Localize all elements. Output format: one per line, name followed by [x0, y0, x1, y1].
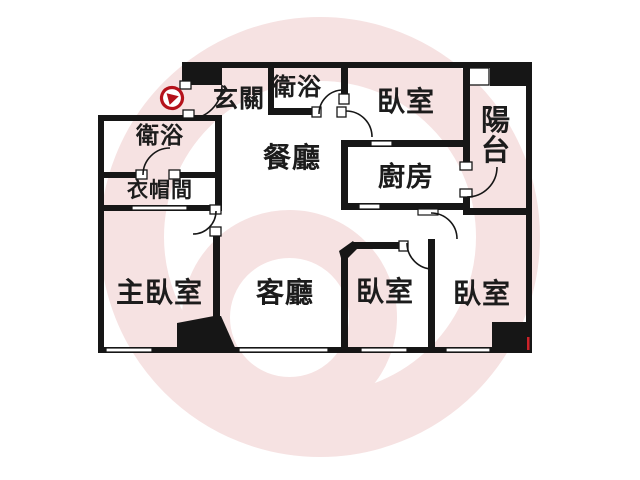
kitchen-top-inset — [371, 141, 392, 146]
label-living: 客廳 — [256, 278, 314, 307]
watermark-red-sliver — [527, 337, 530, 350]
wall-bed-right-top — [463, 208, 532, 215]
wall-master-living — [213, 236, 220, 322]
label-kitchen: 廚房 — [378, 164, 434, 192]
label-bedroom-top: 臥室 — [377, 87, 435, 116]
wall-top — [182, 62, 532, 68]
window-bed-mid — [361, 348, 407, 352]
kitchen-bottom-inset — [359, 204, 380, 209]
jamb-entrance-b — [183, 110, 194, 118]
wall-kitchen-left — [341, 140, 348, 210]
wall-bath-top-bottom — [268, 108, 316, 115]
wall-closet-right — [215, 115, 222, 211]
top-right-shaft — [469, 68, 489, 85]
label-bedroom-mid: 臥室 — [356, 277, 414, 306]
label-bath-top: 衛浴 — [272, 75, 322, 100]
jamb-balcony-a — [460, 162, 472, 170]
bottom-right-block — [492, 322, 532, 352]
structural-wedge — [177, 316, 237, 352]
label-master-bedroom: 主臥室 — [116, 278, 203, 307]
door-bed-top — [346, 111, 372, 137]
label-balcony: 陽台 — [481, 105, 513, 166]
floorplan-drawing — [0, 0, 640, 480]
wall-bed-divider — [428, 239, 435, 352]
wall-left — [98, 115, 104, 353]
window-bed-right — [446, 348, 490, 352]
bed-right-top-inset — [418, 209, 438, 215]
top-right-block — [490, 62, 532, 86]
jamb-master-b — [210, 227, 221, 236]
label-entry: 玄關 — [213, 86, 265, 112]
wall-right — [526, 62, 532, 353]
wall-bed-mid-left — [341, 252, 348, 352]
wall-bed-mid-top — [352, 242, 403, 249]
jamb-bath-top-b — [337, 107, 346, 117]
label-closet: 衣帽間 — [127, 179, 193, 201]
wall-kitchen-top — [341, 140, 467, 147]
label-bedroom-right: 臥室 — [453, 279, 511, 308]
door-bed-right — [431, 213, 457, 239]
jamb-bed-top — [339, 94, 349, 104]
jamb-balcony-b — [460, 189, 472, 197]
closet-slider-window — [132, 206, 187, 210]
wall-balcony-left-upper — [463, 62, 470, 163]
window-master — [106, 348, 152, 352]
window-living — [239, 348, 328, 352]
label-bath-left: 衛浴 — [136, 124, 184, 148]
jamb-entrance-a — [180, 81, 191, 89]
label-dining: 餐廳 — [263, 143, 321, 172]
